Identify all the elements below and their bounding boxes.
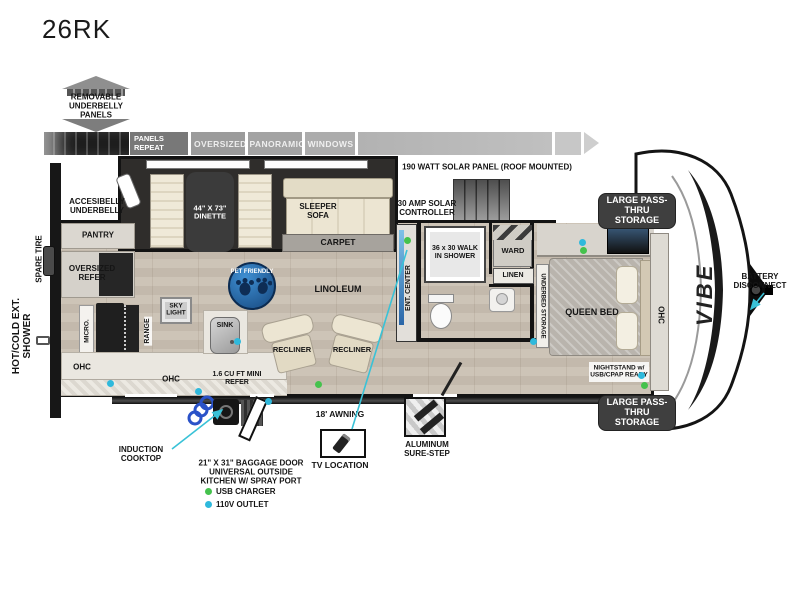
accessible-underbelly-label: ACCESIBELLY UNDERBELLY [51,198,143,216]
bath-wall [417,222,421,342]
pillow-icon [616,266,638,304]
bath-sink-basin-icon [496,293,508,305]
floorplan-page: 26RK REMOVABLE UNDERBELLY PANELS PANELS … [0,0,800,600]
ohc-bedroom-label: OHC [656,306,665,324]
paw-prints-icon [232,276,272,296]
pass-thru-storage-badge: LARGE PASS-THRU STORAGE [598,395,676,431]
tv-location-icon [320,429,366,458]
spare-tire-label: SPARE TIRE [36,235,45,282]
linoleum-label: LINOLEUM [315,284,362,294]
arrow-down-icon [62,119,130,132]
pantry-label: PANTRY [82,232,114,241]
range-label: RANGE [144,316,152,345]
linen-label: LINEN [503,272,524,280]
110v-outlet-dot [195,388,202,395]
110v-outlet-legend-label: 110V OUTLET [216,500,268,509]
solar-controller-label: 30 AMP SOLAR CONTROLLER [391,200,463,218]
sleeper-sofa-label: SLEEPER SOFA [289,203,347,221]
ohc-kitchen-label: OHC [162,376,180,385]
queen-bed-label: QUEEN BED [565,307,619,317]
ext-shower-port-icon [36,336,50,345]
toilet-bowl-icon [430,303,452,329]
arrow-up-icon [62,76,130,89]
shower-label: 36 x 30 WALK IN SHOWER [430,245,480,261]
tv-screen-icon [399,230,404,325]
page-title: 26RK [42,14,111,45]
induction-cooktop-label: INDUCTION COOKTOP [98,446,184,464]
corrugated-panel-icon [44,132,129,155]
spare-tire-icon [43,246,55,276]
ext-shower-label: HOT/COLD EXT. SHOWER [11,297,33,375]
oven [96,303,124,359]
spray-port-hose-icon [186,394,216,428]
bedroom-tv-icon [607,226,649,254]
induction-cooktop-icon [213,399,239,425]
brand-logo: VIBE [692,263,717,326]
sink-label: SINK [217,322,234,330]
pass-thru-storage-label: LARGE PASS-THRU STORAGE [604,398,670,428]
panels-repeat-label: PANELS REPEAT [130,132,176,152]
band-arrowhead-icon [584,132,599,154]
window-icon [264,160,368,169]
panels-arrow-band: PANELS REPEAT OVERSIZED PANORAMIC WINDOW… [130,132,599,155]
dinette-bench [238,174,272,248]
solar-panel-label: 190 WATT SOLAR PANEL (ROOF MOUNTED) [397,164,577,173]
pet-friendly-label: PET FRIENDLY [230,269,274,276]
usb-charger-dot [404,237,411,244]
sure-step-icon [404,397,446,437]
pet-friendly-badge: PET FRIENDLY [228,262,276,310]
bath-wall [417,338,537,342]
pass-thru-storage-label: LARGE PASS-THRU STORAGE [604,196,670,226]
band-segment: PANELS REPEAT [130,132,188,155]
underbed-storage-label: UNDERBED STORAGE [539,273,546,338]
110v-outlet-dot [579,239,586,246]
ohc-rear-label: OHC [73,364,91,373]
range-burners-icon [124,305,139,357]
110v-outlet-dot [530,338,537,345]
band-segment [358,132,552,155]
pillow-icon [616,312,638,350]
110v-outlet-dot [265,398,272,405]
ent-center-label: ENT. CENTER [405,265,413,311]
110v-outlet-legend-dot [205,501,212,508]
panoramic-windows-label: OVERSIZED PANORAMIC WINDOWS [194,139,353,149]
dinette-bench [150,174,184,248]
110v-outlet-dot [234,338,241,345]
awning-label: 18' AWNING [316,410,364,420]
usb-charger-dot [641,382,648,389]
oversized-refer-label: OVERSIZED REFER [63,265,121,283]
mini-refer-label: 1.6 CU FT MINI REFER [209,371,265,387]
bath-wall [489,222,492,274]
baggage-door-label: 21" X 31" BAGGAGE DOOR UNIVERSAL OUTSIDE… [197,460,305,487]
bath-wall [489,284,534,287]
sky-light-label: SKY LIGHT [162,303,190,318]
tv-location-label: TV LOCATION [312,461,369,471]
110v-outlet-dot [107,380,114,387]
usb-charger-legend-label: USB CHARGER [216,487,276,496]
wardrobe-rod-icon [493,225,532,240]
band-segment [555,132,581,155]
micro-label: MICRO. [83,319,90,342]
110v-outlet-dot [638,372,645,379]
usb-charger-dot [315,381,322,388]
recliner-label: RECLINER [333,346,371,354]
recliner-label: RECLINER [273,346,311,354]
window-icon [146,160,250,169]
usb-charger-dot [580,247,587,254]
toilet-tank [428,294,454,303]
burner-ring-icon [219,405,233,419]
carpet-label: CARPET [321,238,356,248]
sofa-back [283,178,393,198]
pass-thru-storage-badge: LARGE PASS-THRU STORAGE [598,193,676,229]
ward-label: WARD [502,247,525,255]
usb-charger-legend-dot [205,488,212,495]
remote-icon [332,433,351,454]
sure-step-label: ALUMINUM SURE-STEP [392,441,462,459]
dinette-label: 44" X 73" DINETTE [188,205,232,222]
removable-underbelly-label: REMOVABLE UNDERBELLY PANELS [62,94,130,121]
battery-disconnect-label: BATTERY DISCONNECT [721,273,799,291]
